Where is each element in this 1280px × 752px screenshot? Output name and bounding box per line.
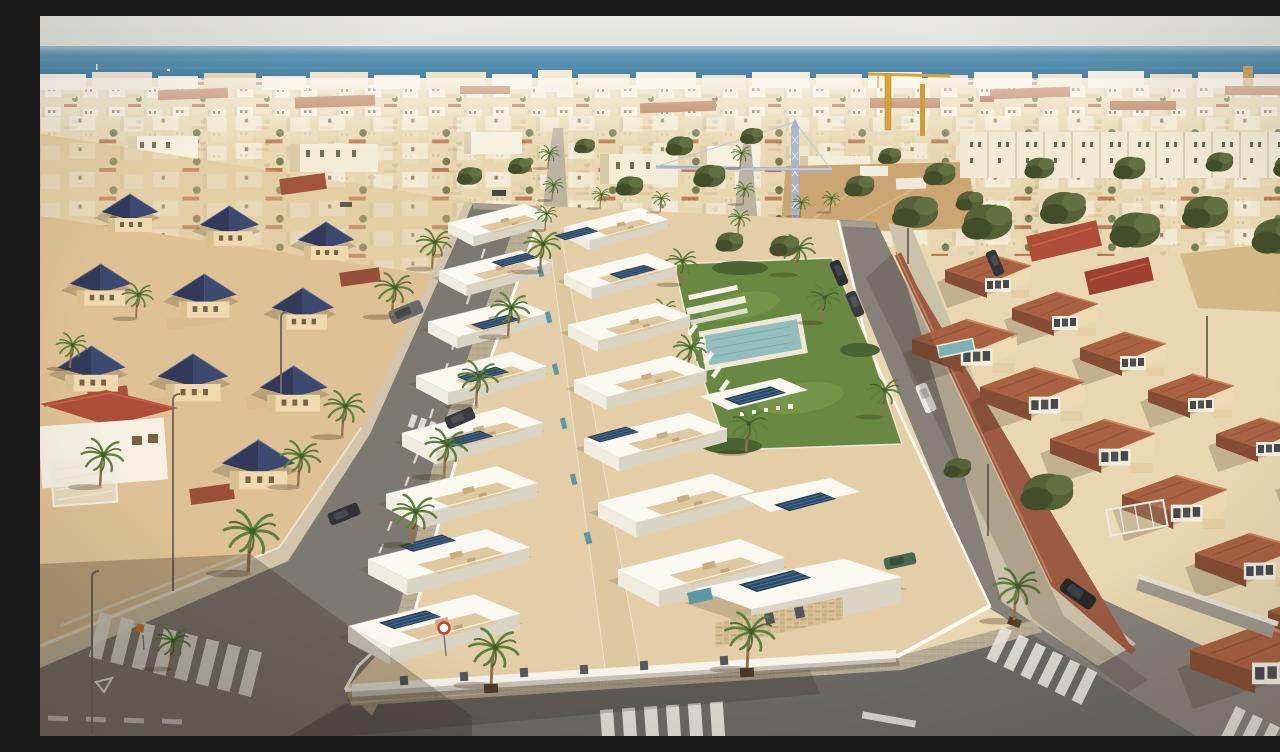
vignette	[40, 16, 1280, 736]
aerial-photo: Aerial drone view at golden hour of a co…	[40, 16, 1280, 736]
